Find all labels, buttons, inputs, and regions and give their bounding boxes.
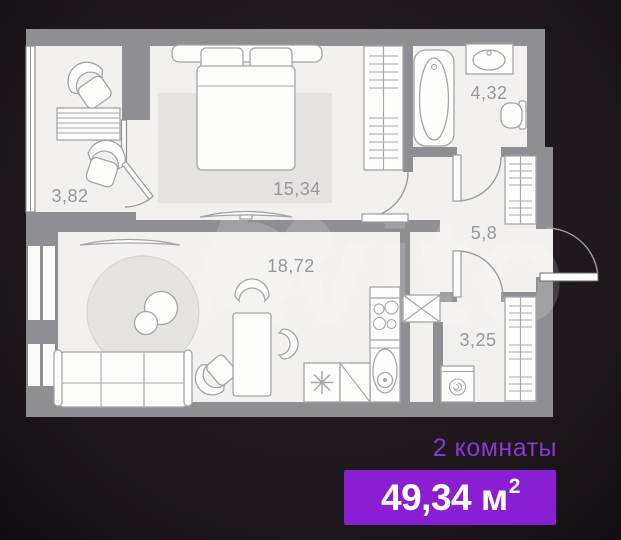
floorplan-screenshot: Avito 3,82 — [0, 0, 621, 540]
room-area-label-bedroom: 15,34 — [273, 179, 321, 199]
bathroom-sink — [466, 44, 513, 74]
dining-table — [233, 313, 271, 396]
utility-wardrobe — [505, 297, 536, 401]
sofa — [54, 350, 192, 407]
room-area-label-living: 18,72 — [267, 256, 315, 276]
fridge — [304, 363, 340, 402]
washing-machine — [441, 366, 474, 402]
floorplan-image: Avito 3,82 — [0, 0, 621, 435]
balcony-window-wall — [26, 46, 35, 212]
room-area-label-utility: 3,25 — [459, 330, 496, 350]
vent-shaft — [403, 295, 440, 322]
corner-counter — [340, 363, 370, 402]
stove — [370, 298, 400, 340]
room-area-label-balcony: 3,82 — [51, 186, 88, 206]
kitchen-counter — [370, 287, 400, 402]
room-area-label-hallway: 5,8 — [471, 223, 498, 243]
balcony-table — [57, 108, 120, 140]
hallway-wardrobe — [505, 156, 536, 224]
pouf-small — [135, 312, 158, 335]
bathtub — [414, 50, 454, 146]
total-area-badge: 49,34 м2 — [344, 470, 556, 525]
toilet — [501, 101, 526, 129]
total-area-value: 49,34 м — [381, 477, 508, 519]
rooms-count-label: 2 комнаты — [433, 434, 557, 463]
room-area-label-bathroom: 4,32 — [470, 83, 507, 103]
floor-plan-svg: Avito 3,82 — [0, 0, 621, 430]
bedroom-wardrobe — [364, 46, 403, 170]
